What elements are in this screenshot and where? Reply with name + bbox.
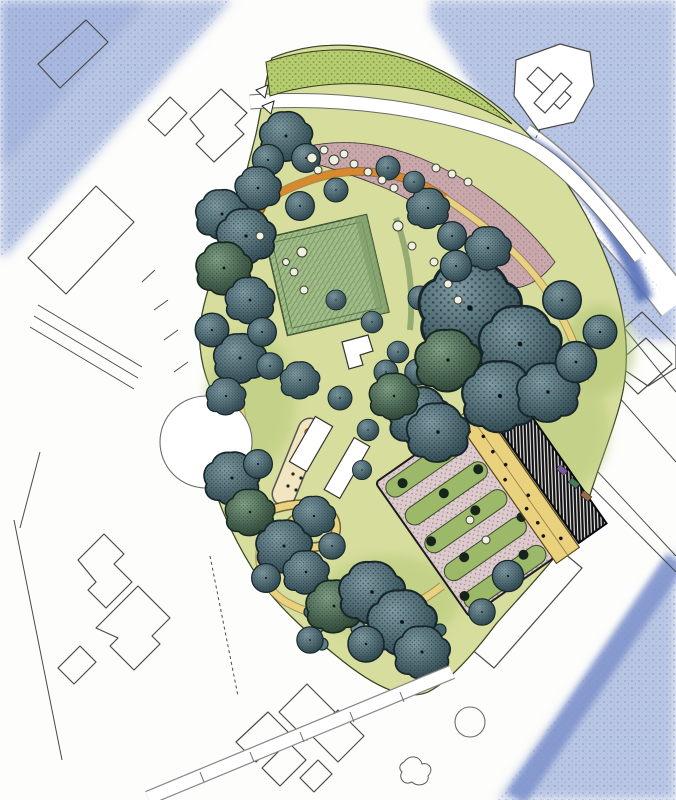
tree-canopy xyxy=(352,460,371,479)
tree-canopy xyxy=(387,341,409,363)
play-dot xyxy=(294,488,297,491)
tree-ring xyxy=(297,247,307,257)
tree-canopy xyxy=(257,353,283,379)
tree-ring xyxy=(454,296,462,304)
tree-canopy xyxy=(348,626,384,662)
tree-ring xyxy=(448,170,456,178)
tree-canopy xyxy=(324,178,348,202)
tree-canopy xyxy=(286,192,315,221)
tree-ring xyxy=(393,221,403,231)
tree-canopy xyxy=(248,318,277,347)
tree-canopy xyxy=(244,450,273,479)
tree-canopy xyxy=(556,342,597,383)
tree-ring xyxy=(364,168,372,176)
tree-ring xyxy=(320,146,328,154)
tree-ring xyxy=(378,176,386,184)
play-dot xyxy=(286,484,289,487)
tree-canopy xyxy=(326,290,346,310)
tree-ring xyxy=(432,164,440,172)
tree-canopy xyxy=(438,222,467,251)
tree-canopy xyxy=(319,533,345,559)
tree-ring xyxy=(466,516,474,524)
tree-ring xyxy=(329,155,339,165)
tree-ring xyxy=(256,232,264,240)
tree-ring xyxy=(444,280,452,288)
scanned-masterplan-page xyxy=(0,0,676,800)
tree-canopy xyxy=(252,564,281,593)
tree-canopy xyxy=(469,599,495,625)
tree-ring xyxy=(430,258,438,266)
tree-ring xyxy=(340,150,348,158)
play-dot xyxy=(291,472,294,475)
tree-canopy xyxy=(492,560,523,591)
tree-canopy xyxy=(357,419,379,441)
tree-canopy xyxy=(361,311,383,333)
tree-canopy xyxy=(403,171,425,193)
tree-ring xyxy=(300,286,308,294)
tree-ring xyxy=(307,153,317,163)
tree-ring xyxy=(464,178,472,186)
tree-ring xyxy=(482,536,490,544)
tree-canopy xyxy=(297,627,323,653)
tree-ring xyxy=(314,166,322,174)
tree-canopy xyxy=(440,250,471,281)
tree-ring xyxy=(290,268,298,276)
tree-ring xyxy=(283,259,290,266)
play-dot xyxy=(299,476,302,479)
tree-ring xyxy=(350,160,358,168)
tree-canopy xyxy=(583,315,617,349)
tree-ring xyxy=(408,242,416,250)
site-plan-drawing xyxy=(0,0,676,800)
tree-canopy xyxy=(328,386,352,410)
tree-ring xyxy=(390,184,398,192)
tree-canopy xyxy=(543,281,581,319)
